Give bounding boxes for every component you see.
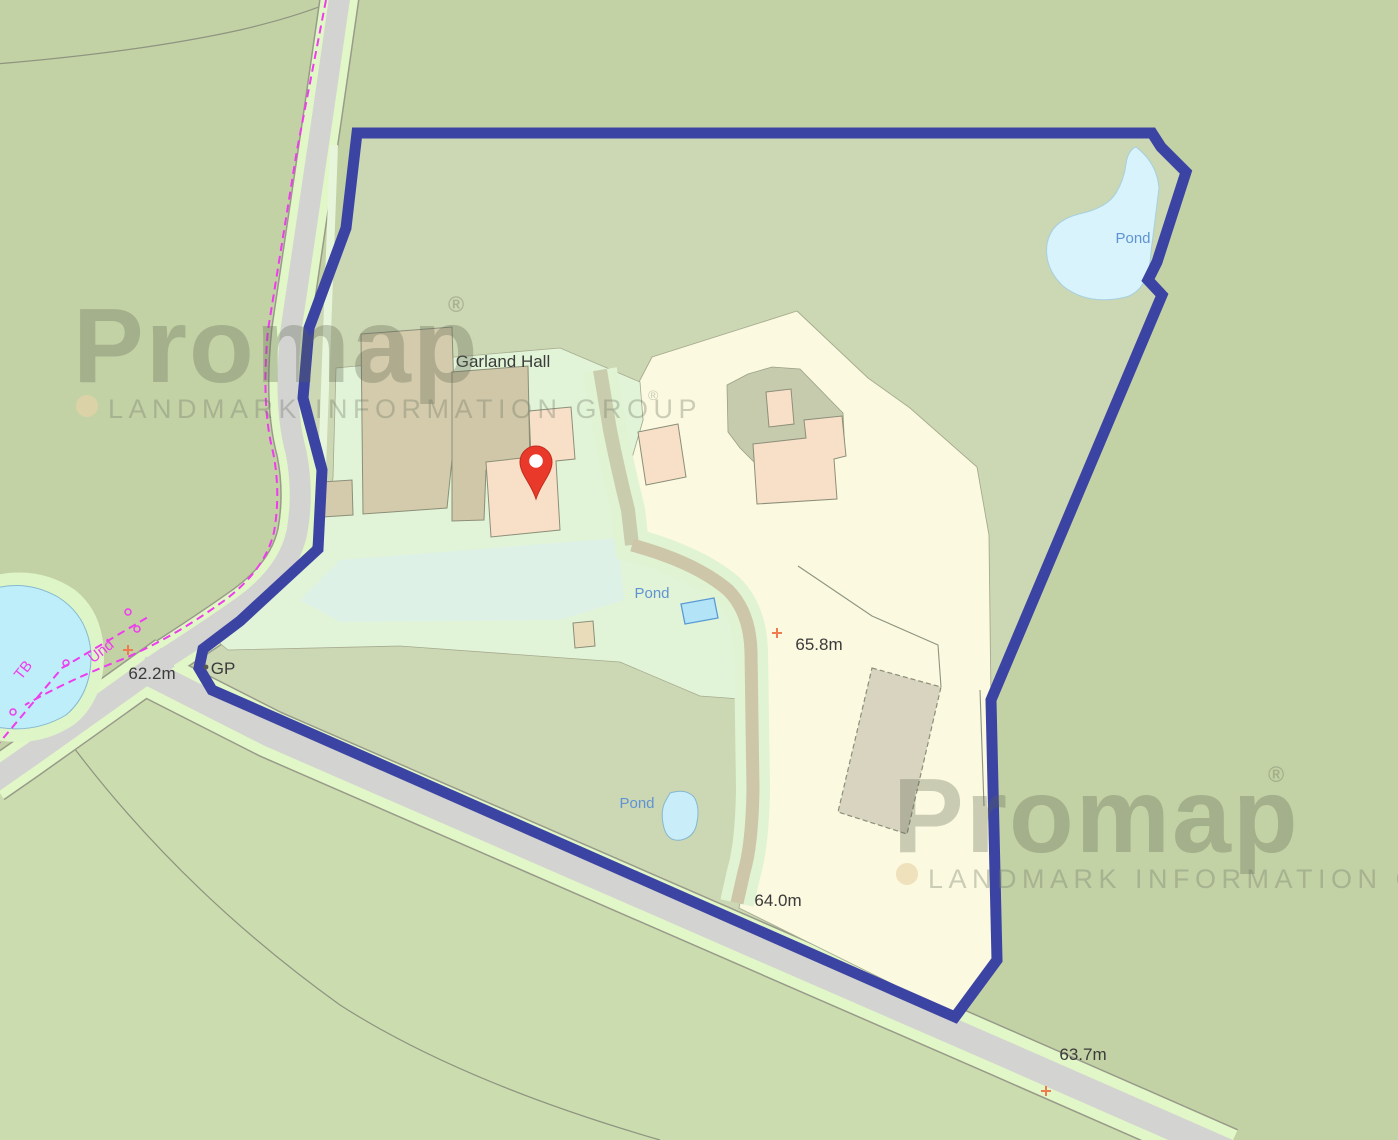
spot-height-drive: 64.0m — [754, 891, 801, 910]
promap-logo-text: Promap — [893, 757, 1300, 875]
building-hut — [573, 621, 595, 648]
landmark-caption: LANDMARK INFORMATION GROUP — [108, 394, 702, 424]
landmark-dot-icon — [896, 863, 918, 885]
registered-mark: ® — [1268, 762, 1284, 787]
spot-height-mid: 65.8m — [795, 635, 842, 654]
guide-post-label: GP — [211, 659, 236, 678]
landmark-caption: LANDMARK INFORMATION GROUP — [928, 864, 1398, 894]
pond-label-bottom: Pond — [619, 795, 654, 812]
pond-bottom — [662, 791, 698, 840]
landmark-dot-icon — [76, 395, 98, 417]
map-viewport[interactable]: Garland Hall Pond Pond Pond 62.2m GP 65.… — [0, 0, 1398, 1140]
guide-post-dot — [204, 665, 209, 670]
location-pin-hole — [529, 454, 543, 468]
map-canvas[interactable]: Garland Hall Pond Pond Pond 62.2m GP 65.… — [0, 0, 1398, 1140]
pond-label-top-right: Pond — [1115, 230, 1150, 247]
spot-height-road: 63.7m — [1059, 1045, 1106, 1064]
pond-label-middle: Pond — [634, 585, 669, 602]
registered-mark-small: ® — [648, 387, 659, 403]
spot-height-junction: 62.2m — [128, 664, 175, 683]
promap-logo-text: Promap — [73, 287, 480, 405]
building-peach-center — [638, 424, 686, 485]
building-peach-small-east — [766, 389, 794, 427]
registered-mark: ® — [448, 292, 464, 317]
